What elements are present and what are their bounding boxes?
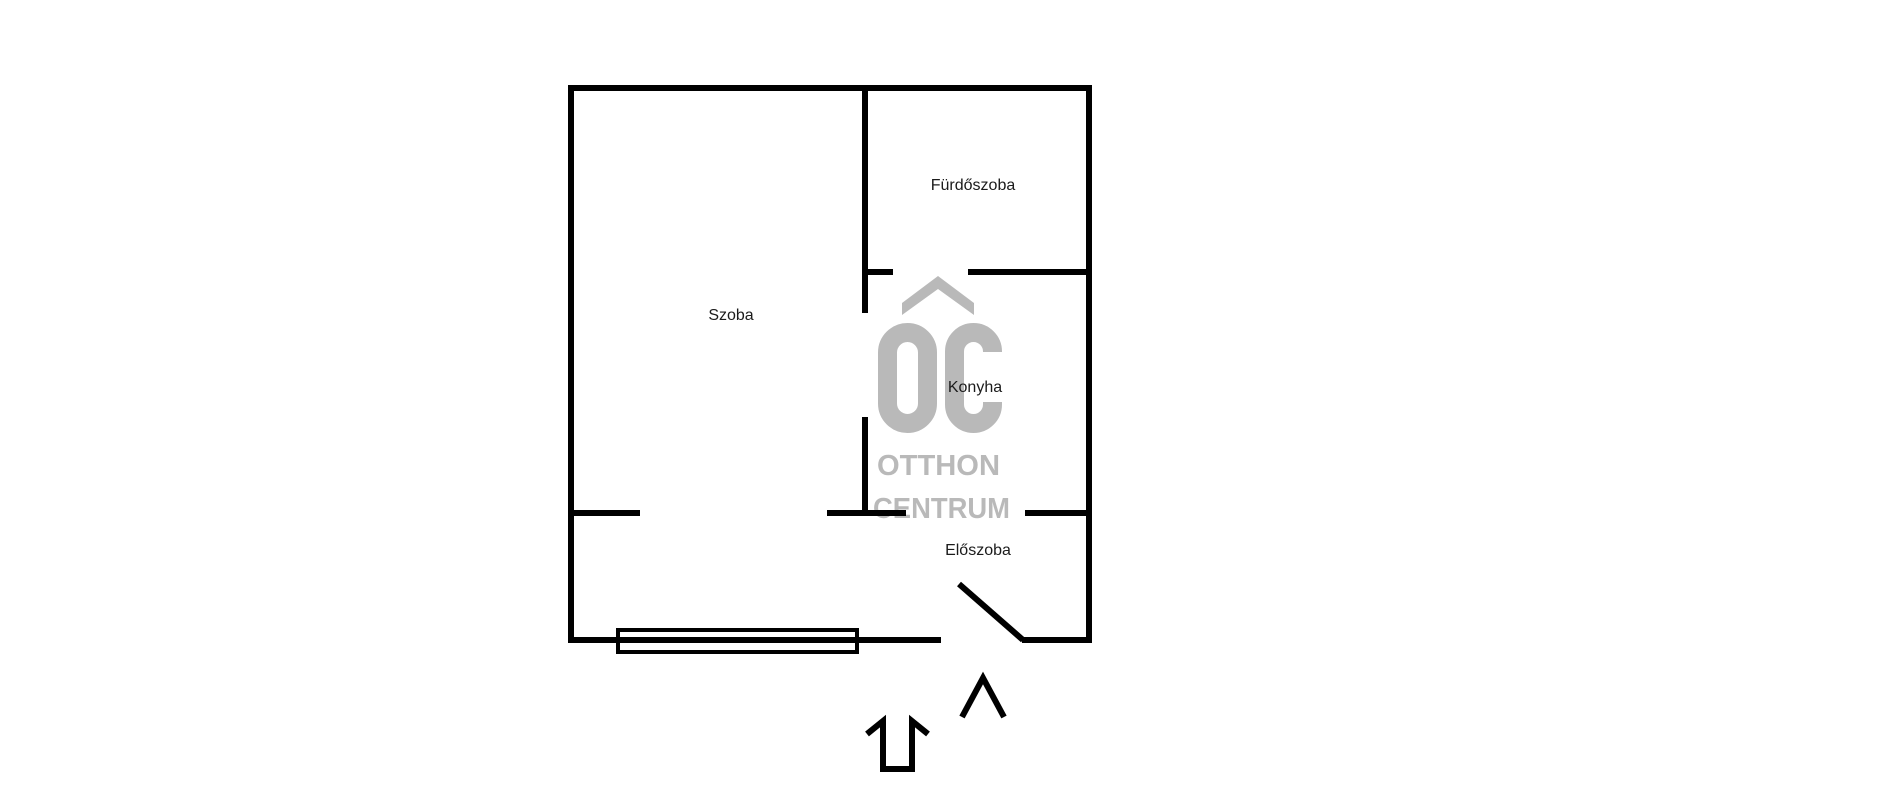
room-label-furdoszoba: Fürdőszoba xyxy=(931,177,1016,194)
floorplan-drawing: OTTHON CENTRUM Szoba Fürdőszoba xyxy=(0,0,1879,800)
watermark-roof-icon xyxy=(902,276,974,315)
entry-door-leaf xyxy=(959,584,1023,640)
watermark-line1: OTTHON xyxy=(877,450,1000,482)
watermark: OTTHON CENTRUM xyxy=(873,276,1010,525)
room-label-eloszoba: Előszoba xyxy=(945,542,1011,559)
watermark-line2: CENTRUM xyxy=(873,493,1010,525)
floorplan-canvas: OTTHON CENTRUM Szoba Fürdőszoba xyxy=(0,0,1879,800)
watermark-letter-o xyxy=(888,333,928,424)
direction-arrow-icon xyxy=(962,678,1004,717)
room-label-szoba: Szoba xyxy=(708,307,753,324)
entrance-arrow-icon xyxy=(867,721,928,769)
room-label-konyha: Konyha xyxy=(948,379,1002,396)
